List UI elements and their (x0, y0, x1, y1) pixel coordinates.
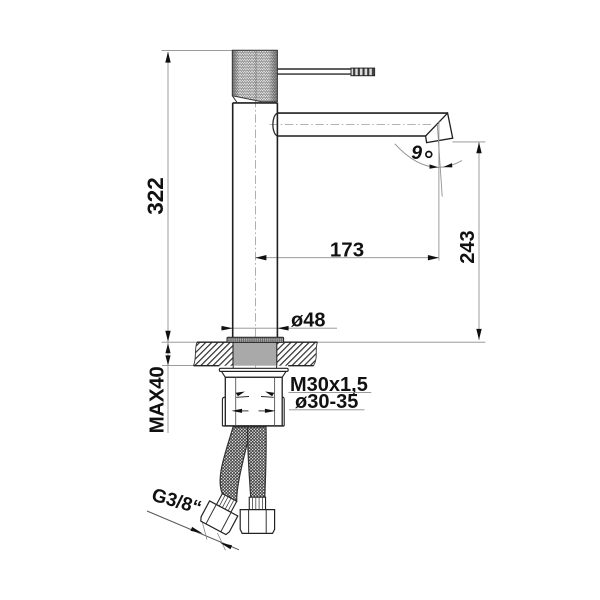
svg-text:G3/8“: G3/8“ (149, 485, 204, 519)
svg-text:ø48: ø48 (291, 309, 325, 331)
svg-text:MAX40: MAX40 (146, 367, 169, 434)
svg-text:243: 243 (457, 230, 479, 263)
svg-text:173: 173 (330, 238, 364, 261)
svg-text:322: 322 (143, 177, 168, 215)
svg-text:9: 9 (411, 142, 422, 164)
